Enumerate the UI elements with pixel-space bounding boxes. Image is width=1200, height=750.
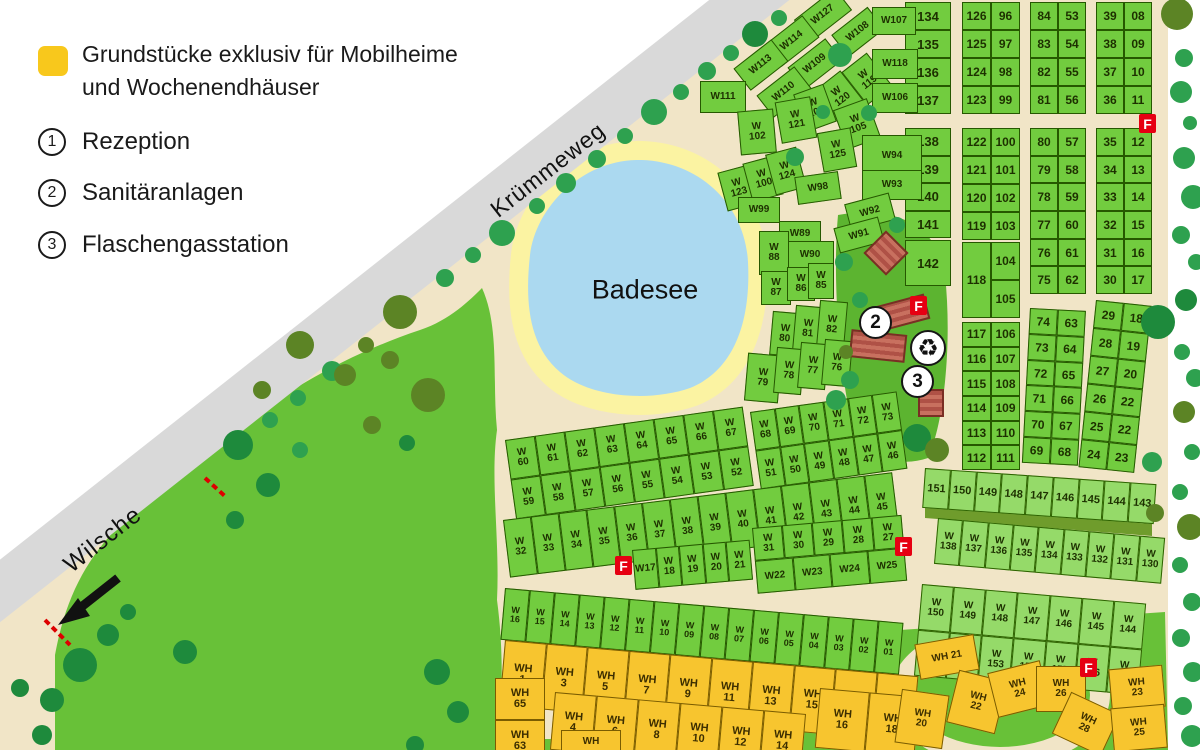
- fire-hydrant-marker-icon: F: [1139, 114, 1156, 133]
- fire-hydrant-marker-icon: F: [895, 537, 912, 556]
- legend-item-label: Grundstücke exklusiv für Mobilheime und …: [82, 38, 466, 105]
- legend-item-label: Rezeption: [82, 125, 190, 157]
- fire-hydrant-marker-icon: F: [1080, 658, 1097, 677]
- yellow-plot-swatch-icon: [38, 46, 68, 76]
- numbered-marker-2: 2: [859, 306, 892, 339]
- legend: Grundstücke exklusiv für Mobilheime und …: [36, 38, 466, 280]
- circle-3-icon: 3: [38, 231, 66, 259]
- fire-hydrant-marker-icon: F: [910, 296, 927, 315]
- fire-hydrant-marker-icon: F: [615, 556, 632, 575]
- lake-label: Badesee: [592, 275, 699, 306]
- numbered-marker-3: 3: [901, 365, 934, 398]
- site-map: 1341351361371269612597124981239984538354…: [0, 0, 1200, 750]
- legend-item-label: Sanitäranlagen: [82, 176, 243, 208]
- circle-2-icon: 2: [38, 179, 66, 207]
- legend-item-sanitaeranlagen: 2 Sanitäranlagen: [36, 176, 466, 208]
- legend-item-flaschengasstation: 3 Flaschengasstation: [36, 228, 466, 260]
- legend-item-mobilheime: Grundstücke exklusiv für Mobilheime und …: [36, 38, 466, 105]
- legend-item-label: Flaschengasstation: [82, 228, 289, 260]
- recycling-icon: ♻: [910, 330, 946, 366]
- legend-item-rezeption: 1 Rezeption: [36, 125, 466, 157]
- circle-1-icon: 1: [38, 128, 66, 156]
